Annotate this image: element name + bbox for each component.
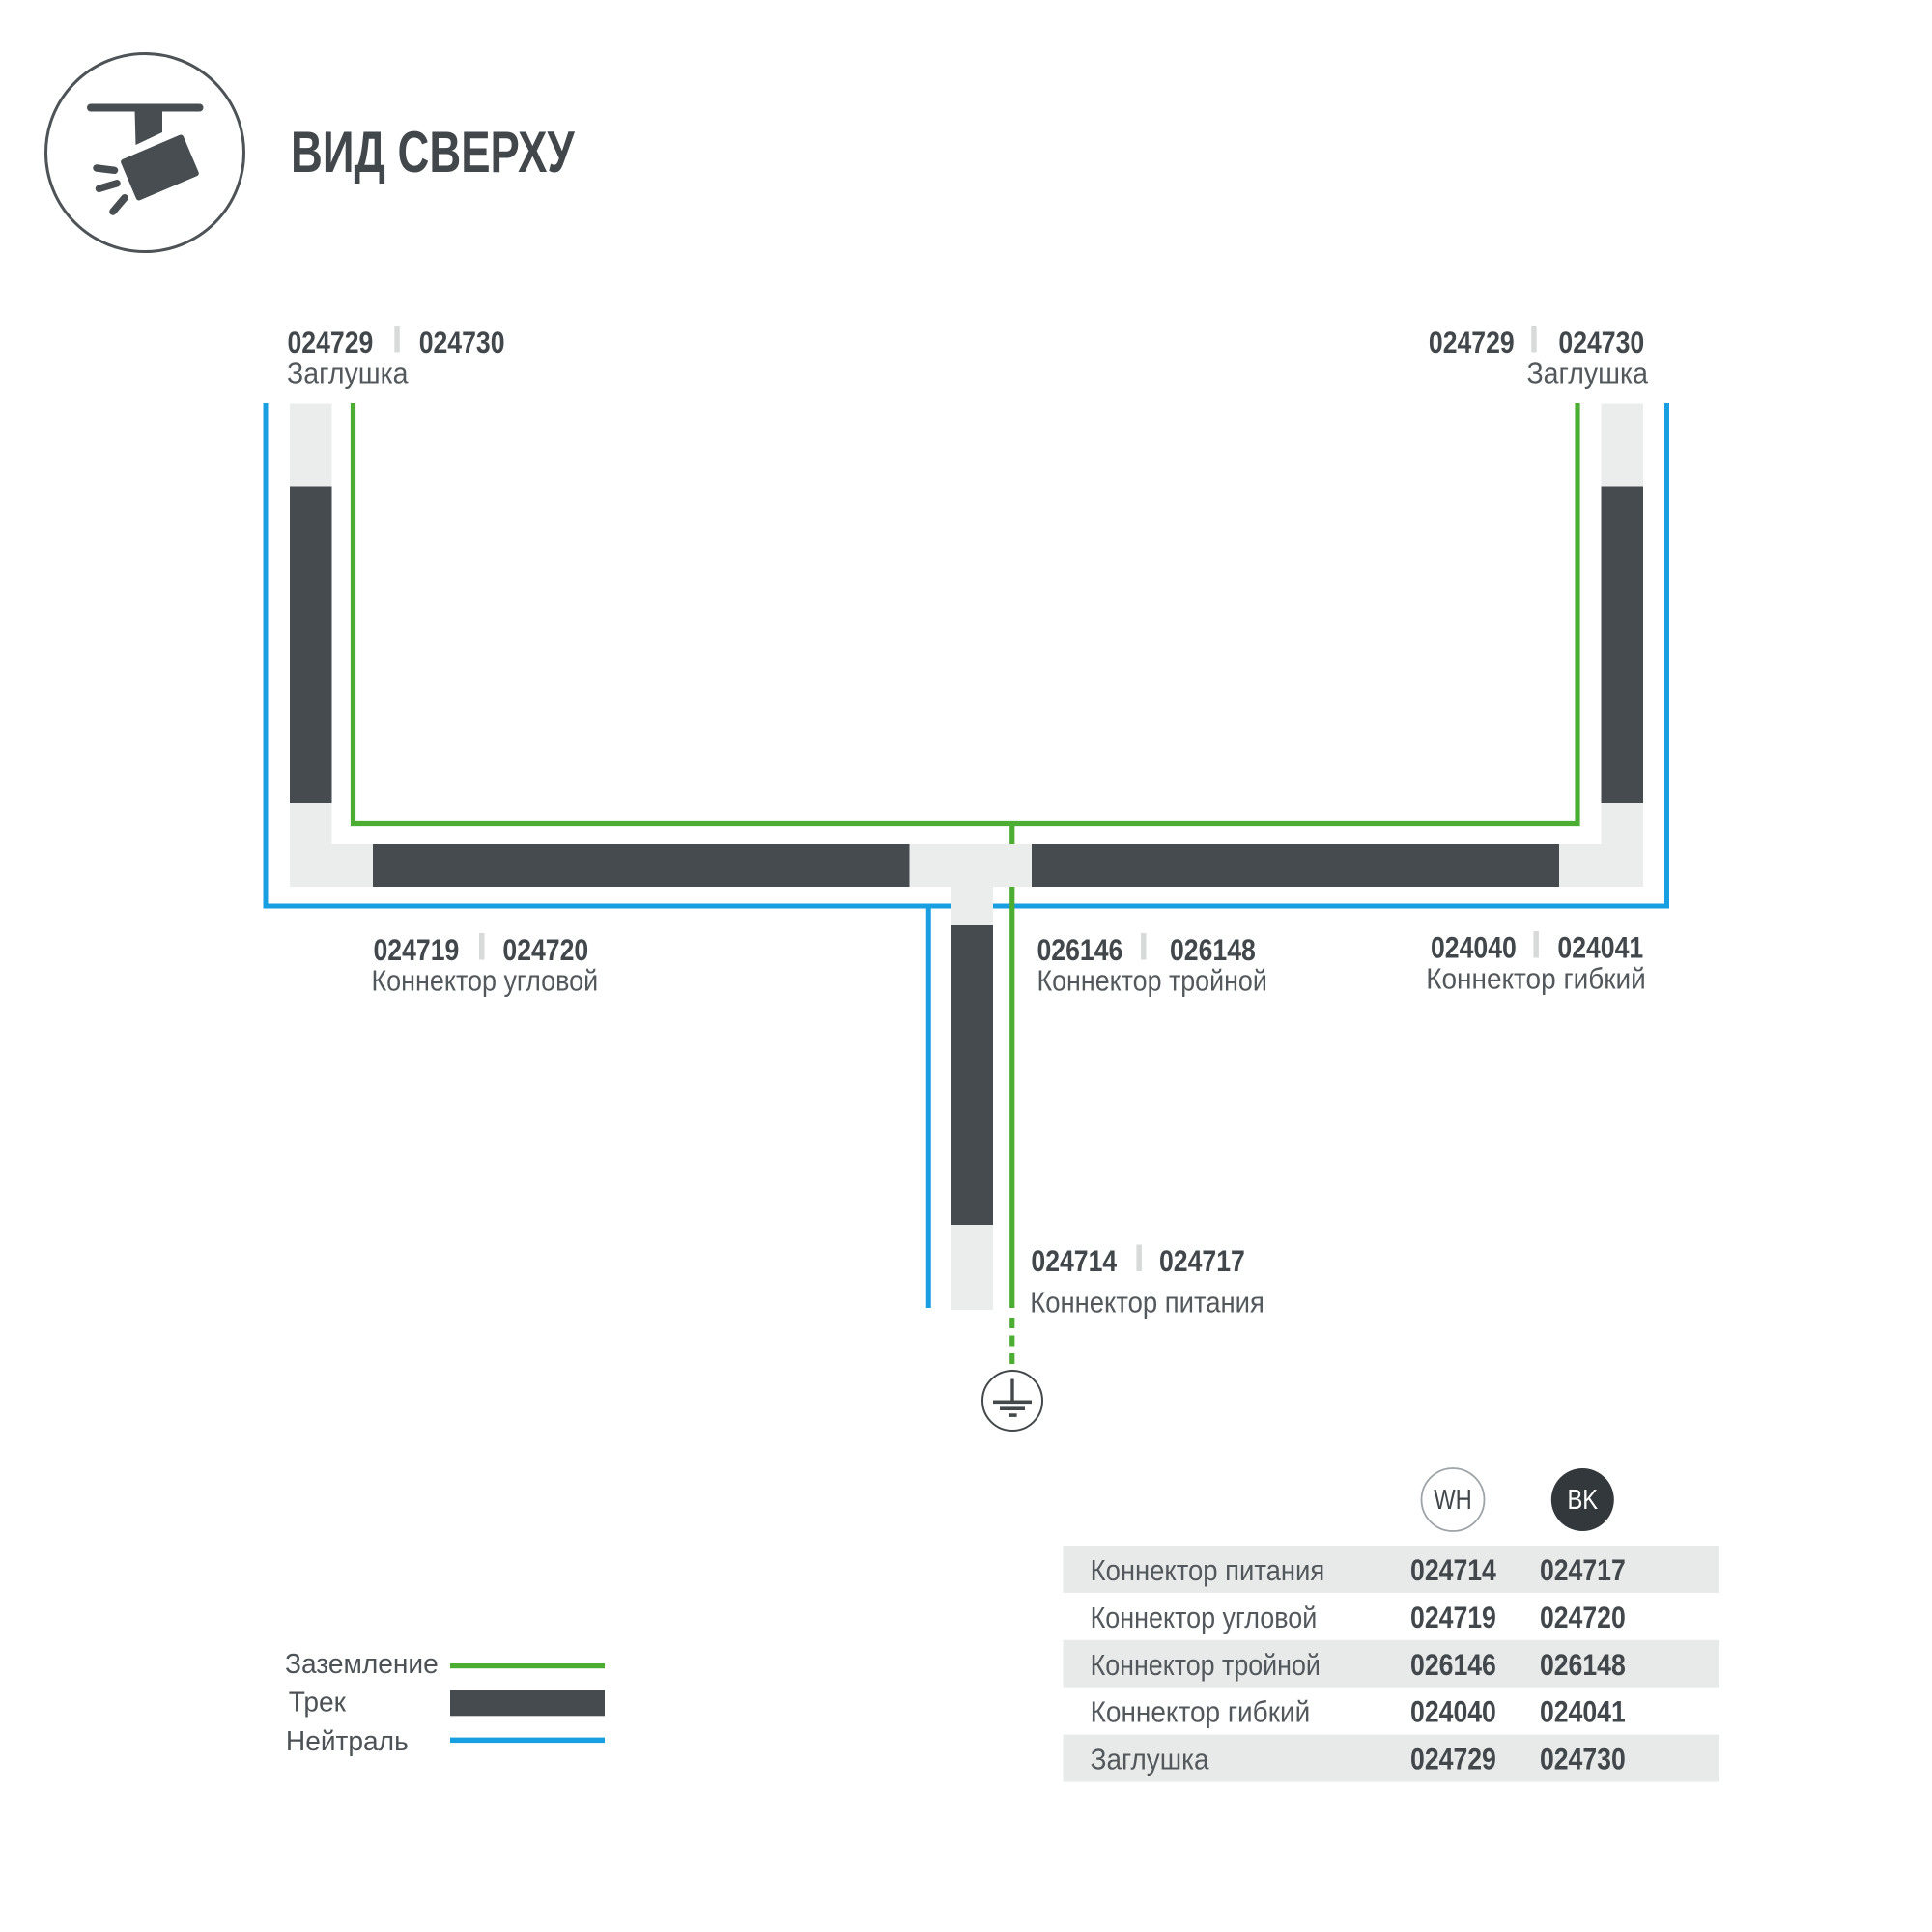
svg-text:Заглушка: Заглушка bbox=[287, 356, 409, 389]
svg-text:024730: 024730 bbox=[419, 327, 505, 360]
svg-text:026148: 026148 bbox=[1170, 934, 1256, 968]
svg-text:024720: 024720 bbox=[1540, 1602, 1626, 1635]
svg-text:026146: 026146 bbox=[1037, 934, 1123, 968]
svg-text:Нейтраль: Нейтраль bbox=[286, 1726, 409, 1757]
svg-text:Коннектор гибкий: Коннектор гибкий bbox=[1426, 962, 1646, 996]
svg-text:Коннектор угловой: Коннектор угловой bbox=[1091, 1602, 1318, 1634]
svg-text:Заглушка: Заглушка bbox=[1091, 1743, 1209, 1776]
svg-text:024040: 024040 bbox=[1410, 1696, 1496, 1730]
svg-text:024719: 024719 bbox=[1410, 1602, 1496, 1635]
svg-text:Коннектор гибкий: Коннектор гибкий bbox=[1091, 1695, 1311, 1729]
svg-text:024041: 024041 bbox=[1540, 1696, 1626, 1730]
svg-text:WH: WH bbox=[1434, 1484, 1472, 1516]
svg-text:024717: 024717 bbox=[1540, 1554, 1626, 1588]
svg-text:Заземление: Заземление bbox=[285, 1649, 439, 1680]
svg-text:Коннектор угловой: Коннектор угловой bbox=[372, 965, 599, 998]
svg-text:Коннектор питания: Коннектор питания bbox=[1030, 1286, 1264, 1320]
svg-text:Коннектор тройной: Коннектор тройной bbox=[1091, 1649, 1321, 1682]
svg-text:024040: 024040 bbox=[1431, 931, 1517, 965]
svg-text:024729: 024729 bbox=[1410, 1744, 1496, 1777]
svg-text:024717: 024717 bbox=[1159, 1245, 1245, 1279]
svg-text:024714: 024714 bbox=[1031, 1245, 1118, 1279]
svg-text:Коннектор тройной: Коннектор тройной bbox=[1037, 965, 1267, 998]
svg-text:Коннектор питания: Коннектор питания bbox=[1091, 1553, 1325, 1587]
svg-text:Заглушка: Заглушка bbox=[1526, 356, 1648, 389]
svg-text:ВИД СВЕРХУ: ВИД СВЕРХУ bbox=[291, 121, 575, 185]
svg-text:024720: 024720 bbox=[502, 934, 588, 968]
svg-text:026148: 026148 bbox=[1540, 1649, 1626, 1683]
svg-text:024041: 024041 bbox=[1557, 931, 1643, 965]
svg-text:BK: BK bbox=[1567, 1484, 1598, 1516]
svg-text:024729: 024729 bbox=[288, 327, 374, 360]
svg-text:024730: 024730 bbox=[1540, 1744, 1626, 1777]
svg-text:Трек: Трек bbox=[289, 1687, 347, 1718]
svg-text:024730: 024730 bbox=[1558, 327, 1644, 360]
svg-text:024729: 024729 bbox=[1429, 327, 1515, 360]
svg-text:024714: 024714 bbox=[1410, 1554, 1497, 1588]
svg-text:026146: 026146 bbox=[1410, 1649, 1496, 1683]
svg-text:024719: 024719 bbox=[374, 934, 460, 968]
